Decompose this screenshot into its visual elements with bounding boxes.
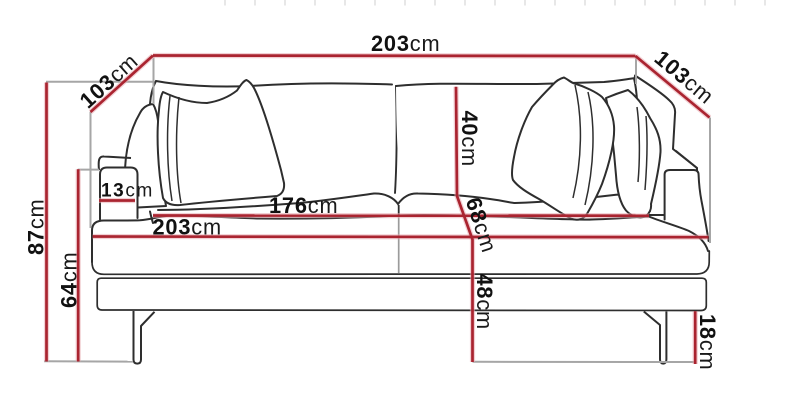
svg-text:13cm: 13cm [101,181,154,202]
svg-text:103cm: 103cm [75,48,143,113]
svg-text:64cm: 64cm [57,251,82,308]
svg-text:40cm: 40cm [457,111,482,168]
svg-text:203cm: 203cm [153,215,222,240]
svg-text:203cm: 203cm [371,31,440,56]
svg-text:18cm: 18cm [695,314,720,371]
svg-text:87cm: 87cm [24,198,49,255]
svg-text:48cm: 48cm [472,274,497,331]
svg-text:176cm: 176cm [269,193,338,218]
